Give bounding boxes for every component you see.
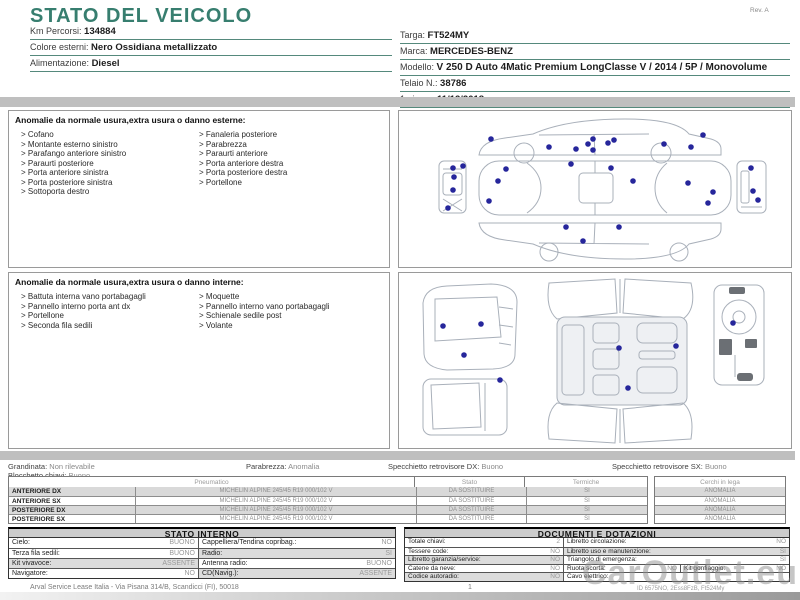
anomaly-item: Cofano	[21, 130, 173, 140]
vehicle-info-left: Km Percorsi: 134884 Colore esterni: Nero…	[30, 24, 392, 72]
anomaly-item: Seconda fila sedili	[21, 321, 173, 331]
interior-anomalies-title: Anomalie da normale usura,extra usura o …	[9, 273, 389, 290]
plan-view	[479, 161, 731, 215]
anomaly-item: Parafango anteriore sinistro	[21, 149, 173, 159]
side-view-top	[479, 119, 721, 163]
anomaly-item: Portellone	[21, 311, 173, 321]
anomaly-item: Portellone	[199, 178, 351, 188]
table-row: ANTERIORE DX MICHELIN ALPINE 245/45 R19 …	[9, 487, 647, 496]
field-colore: Colore esterni: Nero Ossidiana metallizz…	[30, 40, 392, 56]
cabin-plan	[548, 279, 693, 443]
revision-label: Rev. A	[750, 7, 769, 14]
anomaly-item: Schienale sedile post	[199, 311, 351, 321]
anomaly-item: Sottoporta destro	[21, 187, 173, 197]
exterior-anomalies-title: Anomalie da normale usura,extra usura o …	[9, 111, 389, 128]
vehicle-condition-report: STATO DEL VEICOLO Rev. A Km Percorsi: 13…	[0, 0, 800, 600]
trunk-view	[423, 284, 517, 370]
anomaly-item: Paraurti posteriore	[21, 159, 173, 169]
interior-diagram	[399, 273, 791, 448]
tyres-cerchi-column: ANOMALIA ANOMALIA ANOMALIA ANOMALIA	[654, 487, 786, 524]
exterior-anomalies-col2: Fanaleria posteriore Parabrezza Paraurti…	[199, 130, 351, 197]
scan-edge-shadow	[0, 592, 800, 600]
table-row: Kit vivavoce:ASSENTE Antenna radio:BUONO	[9, 558, 395, 568]
interior-anomalies-col2: Moquette Pannello interno vano portabaga…	[199, 292, 351, 330]
exterior-diagram-panel	[398, 110, 792, 268]
anomaly-item: Pannello interno porta ant dx	[21, 302, 173, 312]
anomaly-item: Moquette	[199, 292, 351, 302]
tyres-table: ANTERIORE DX MICHELIN ALPINE 245/45 R19 …	[8, 487, 648, 524]
footer-page-number: 1	[468, 584, 472, 591]
interior-diagram-panel	[398, 272, 792, 449]
table-row: ANOMALIA	[655, 514, 785, 523]
anomaly-item: Porta anteriore destra	[199, 159, 351, 169]
status-specchietto-dx: Specchietto retrovisore DX: Buono	[388, 462, 503, 471]
interior-anomalies-panel: Anomalie da normale usura,extra usura o …	[8, 272, 390, 449]
anomaly-item: Porta anteriore sinistra	[21, 168, 173, 178]
status-specchietto-sx: Specchietto retrovisore SX: Buono	[612, 462, 727, 471]
table-row: Navigatore:NO CD(Navig.):ASSENTE	[9, 568, 395, 578]
field-alimentazione: Alimentazione: Diesel	[30, 56, 392, 72]
damage-markers	[445, 132, 761, 244]
anomaly-item: Montante esterno sinistro	[21, 140, 173, 150]
anomaly-item: Porta posteriore destra	[199, 168, 351, 178]
separator-bar-middle	[0, 451, 795, 460]
table-row: ANOMALIA	[655, 487, 785, 496]
anomaly-item: Paraurti anteriore	[199, 149, 351, 159]
tailgate-view	[423, 379, 507, 435]
status-grandinata: Grandinata: Non rilevabile	[8, 462, 95, 471]
interior-anomalies-col1: Battuta interna vano portabagagli Pannel…	[21, 292, 173, 330]
vehicle-info-right: Targa: FT524MY Marca: MERCEDES-BENZ Mode…	[400, 28, 790, 108]
separator-bar-top	[0, 97, 795, 107]
footer-doc-id: ID 6575NO, 2Ess8FzB, Ft524My	[637, 586, 724, 592]
field-km: Km Percorsi: 134884	[30, 24, 392, 40]
stato-interno-table: STATO INTERNO Cielo:BUONO Cappelliera/Te…	[8, 527, 396, 579]
table-row: POSTERIORE SX MICHELIN ALPINE 245/45 R19…	[9, 514, 647, 523]
table-row: ANOMALIA	[655, 496, 785, 505]
side-view-bottom	[479, 223, 721, 261]
field-targa: Targa: FT524MY	[400, 28, 790, 44]
table-row: ANOMALIA	[655, 505, 785, 514]
exterior-diagram	[399, 111, 791, 267]
exterior-anomalies-panel: Anomalie da normale usura,extra usura o …	[8, 110, 390, 268]
anomaly-item: Fanaleria posteriore	[199, 130, 351, 140]
table-row: Cielo:BUONO Cappelliera/Tendina copribag…	[9, 538, 395, 548]
documenti-title: DOCUMENTI E DOTAZIONI	[404, 527, 790, 538]
anomaly-item: Volante	[199, 321, 351, 331]
dashboard-view	[714, 285, 764, 385]
field-telaio: Telaio N.: 38786	[400, 76, 790, 92]
anomaly-item: Pannello interno vano portabagagli	[199, 302, 351, 312]
table-row: ANTERIORE SX MICHELIN ALPINE 245/45 R19 …	[9, 496, 647, 505]
field-modello: Modello: V 250 D Auto 4Matic Premium Lon…	[400, 60, 790, 76]
stato-interno-title: STATO INTERNO	[8, 527, 396, 538]
table-row: Terza fila sedili:BUONO Radio:SI	[9, 548, 395, 558]
exterior-anomalies-col1: Cofano Montante esterno sinistro Parafan…	[21, 130, 173, 197]
status-parabrezza: Parabrezza: Anomalia	[246, 462, 319, 471]
anomaly-item: Porta posteriore sinistra	[21, 178, 173, 188]
anomaly-item: Parabrezza	[199, 140, 351, 150]
anomaly-item: Battuta interna vano portabagagli	[21, 292, 173, 302]
field-marca: Marca: MERCEDES-BENZ	[400, 44, 790, 60]
table-row: Totale chiavi:2 Libretto circolazione:NO	[405, 538, 789, 547]
footer-company: Arval Service Lease Italia - Via Pisana …	[30, 584, 239, 591]
table-row: POSTERIORE DX MICHELIN ALPINE 245/45 R19…	[9, 505, 647, 514]
